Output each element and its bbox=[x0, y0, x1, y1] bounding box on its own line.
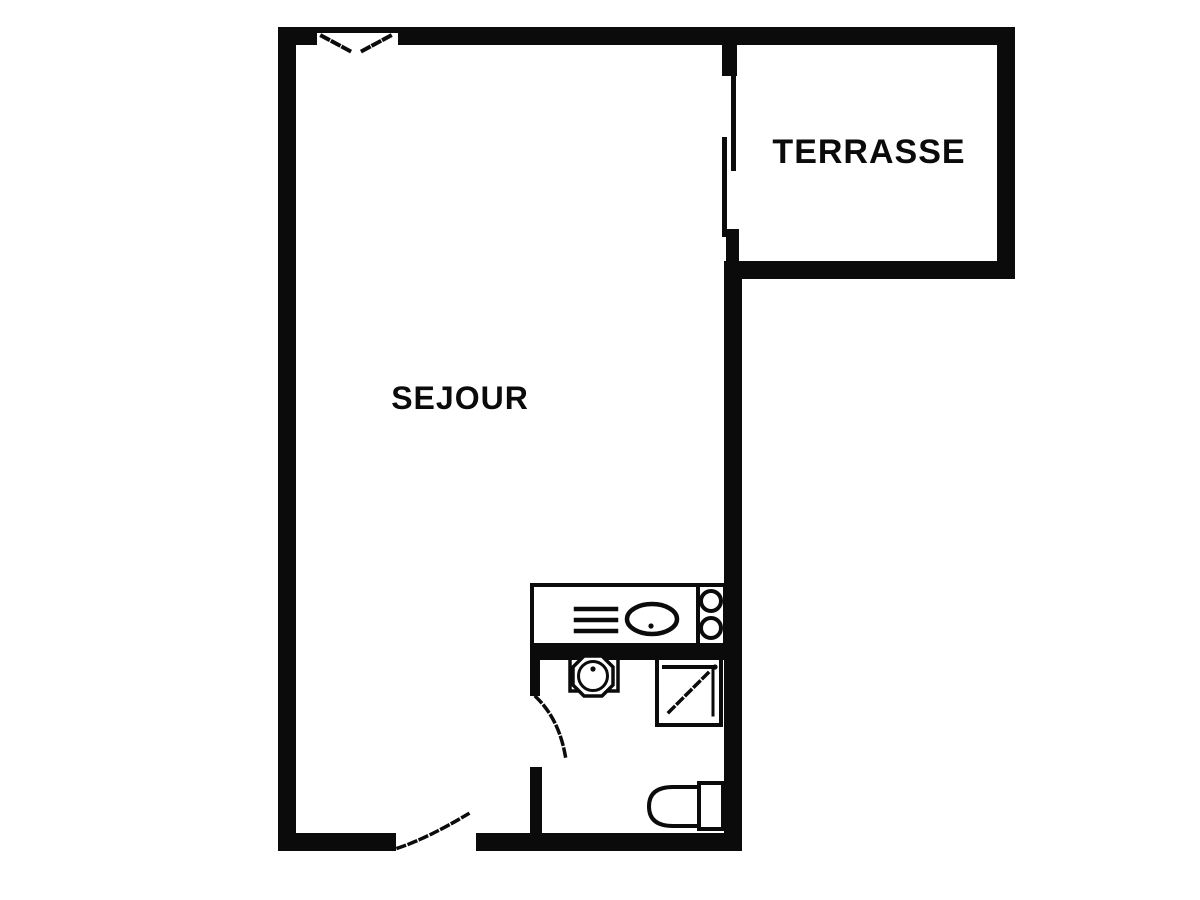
bathroom-door-swing bbox=[536, 697, 566, 760]
wall-left bbox=[278, 27, 296, 851]
toilet-icon bbox=[649, 783, 723, 829]
shower-head bbox=[712, 664, 717, 669]
toilet-bowl bbox=[649, 787, 699, 826]
toilet-tank bbox=[699, 783, 723, 829]
wall-bath-left-lower bbox=[530, 767, 542, 833]
sink-drain bbox=[648, 623, 653, 628]
wall-main-vertical bbox=[724, 261, 742, 851]
partition-stub-top bbox=[722, 45, 737, 76]
shower-icon bbox=[657, 658, 721, 725]
floor-plan-page: SEJOUR TERRASSE bbox=[0, 0, 1200, 900]
wall-bottom-right bbox=[476, 833, 742, 851]
entrance-door-swing bbox=[398, 814, 468, 848]
floor-plan-drawing: SEJOUR TERRASSE bbox=[0, 0, 1200, 900]
wall-bottom-left bbox=[278, 833, 396, 851]
washbasin-icon bbox=[570, 656, 618, 696]
wall-terrace-right bbox=[997, 27, 1015, 279]
terrasse-label: TERRASSE bbox=[772, 133, 965, 171]
sejour-label: SEJOUR bbox=[391, 380, 529, 416]
sliding-door-icon bbox=[722, 45, 739, 261]
wall-bath-left-upper bbox=[530, 647, 540, 696]
sliding-panel-a bbox=[731, 76, 736, 171]
basin-drain bbox=[590, 666, 595, 671]
window-icon bbox=[317, 33, 398, 51]
kitchenette-counter bbox=[532, 585, 725, 645]
sliding-panel-b bbox=[722, 137, 727, 237]
wall-terrace-bottom bbox=[724, 261, 1015, 279]
partition-stub-bottom bbox=[726, 229, 739, 261]
